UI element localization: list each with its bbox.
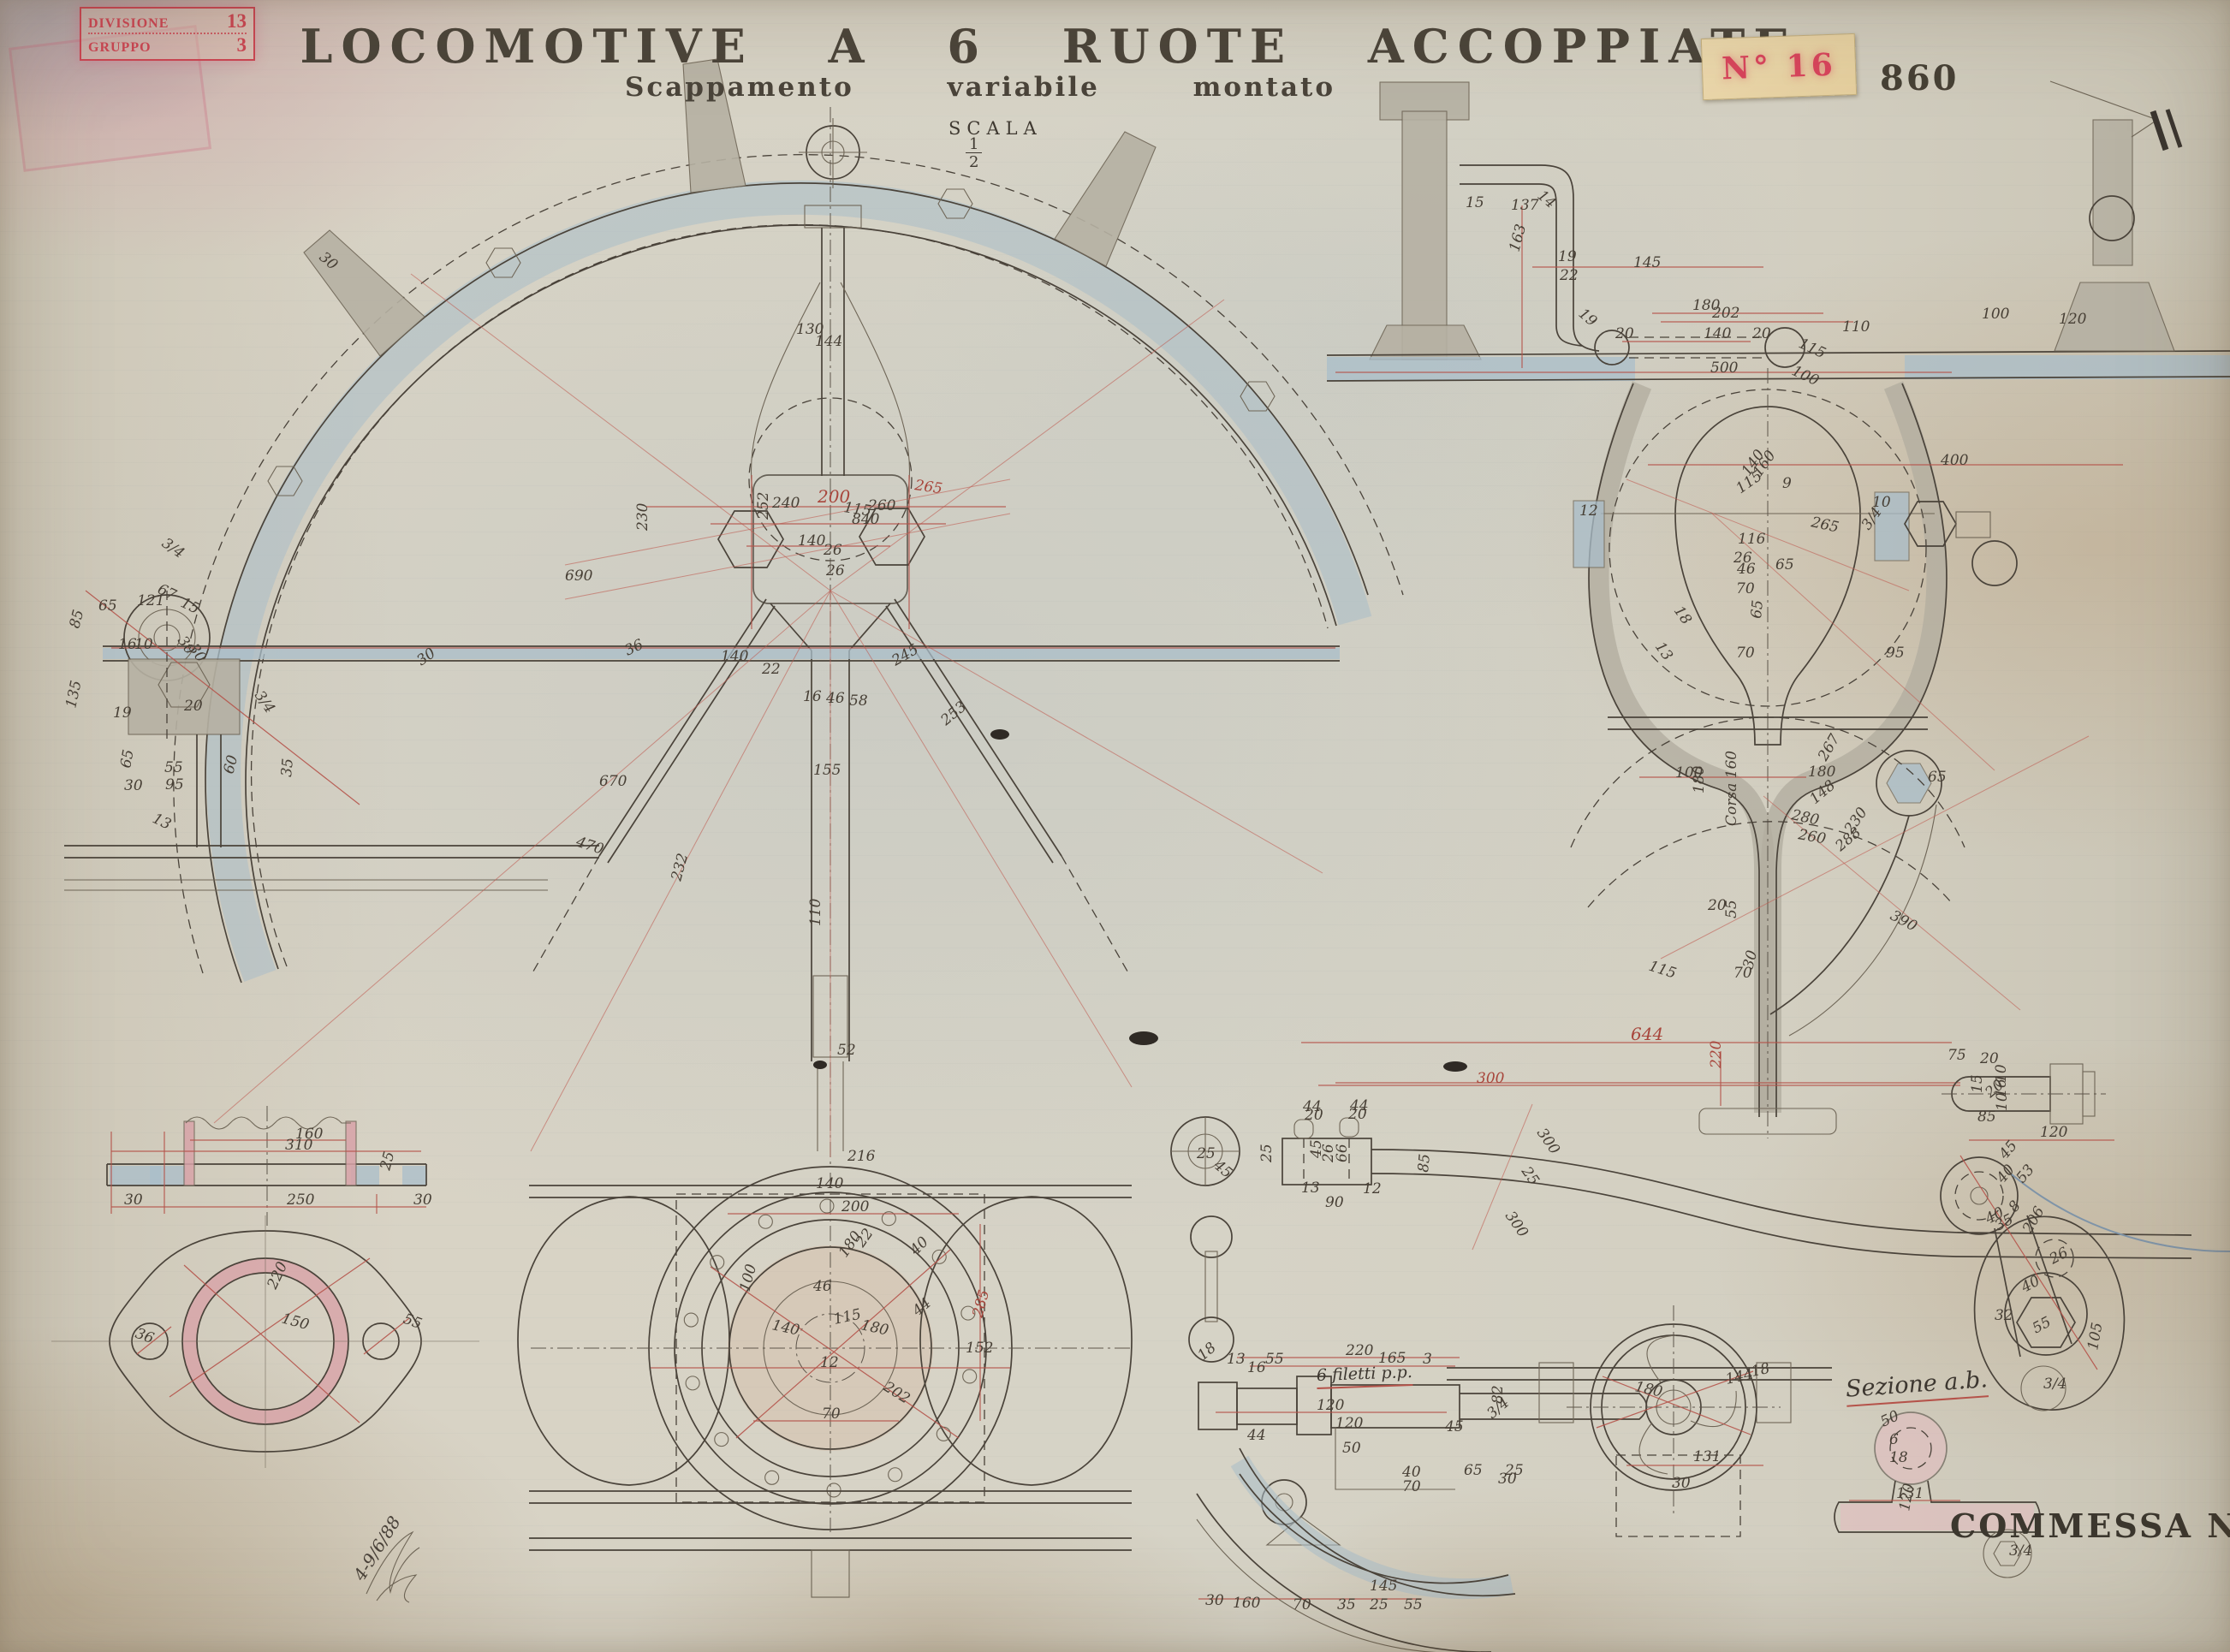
dimension-label: 144 — [815, 333, 842, 350]
dimension-label: 202 — [1711, 305, 1739, 322]
dimension-label: 30 — [413, 1191, 432, 1209]
dimension-label: 75 — [1948, 1047, 1966, 1064]
dimension-label: 310 — [285, 1137, 313, 1154]
scale-denominator: 2 — [966, 152, 982, 170]
dimension-label: 70 — [1733, 965, 1752, 982]
dimension-label: 18 — [1750, 1360, 1771, 1381]
bolt-hole — [889, 1468, 902, 1482]
dimension-label: 232 — [668, 852, 692, 883]
division-value: 13 — [227, 10, 247, 33]
dimension-label: 13 — [150, 810, 174, 833]
dimension-label: 66 — [1334, 1144, 1351, 1162]
dimension-label: 13 — [1227, 1351, 1246, 1368]
drawing-subtitle: Scappamento variabile montato — [625, 72, 1335, 103]
dimension-label: 140 — [798, 532, 826, 550]
dimension-label: 9 — [1782, 475, 1792, 492]
dimension-label: 285 — [969, 1288, 993, 1320]
dimension-label: 20 — [1347, 1106, 1367, 1123]
dimension-label: 13 — [1651, 639, 1676, 663]
dimension-label: 163 — [1507, 223, 1531, 254]
dimension-label: 85 — [1415, 1153, 1434, 1173]
dimension-label: 145 — [1633, 254, 1661, 271]
sticker-number: N° 16 — [1722, 47, 1837, 87]
dimension-label: 140 — [1704, 325, 1732, 342]
dimension-label: 70 — [1402, 1478, 1421, 1495]
dimension-label: 52 — [837, 1042, 856, 1059]
dimension-label: 180 — [1633, 1378, 1664, 1400]
dimension-label: 12 — [1363, 1180, 1382, 1197]
dimension-label: 265 — [1809, 514, 1840, 537]
number-sticker: N° 16 — [1701, 33, 1857, 100]
bolt-hole — [765, 1471, 779, 1484]
main-arc-view — [64, 59, 1403, 1164]
arc-fin — [1055, 132, 1156, 266]
dimension-label: 65 — [1775, 556, 1794, 573]
dimension-label: 18 — [1194, 1339, 1220, 1364]
dimension-label: 180 — [1808, 764, 1836, 781]
dimension-label: 95 — [165, 776, 184, 793]
dimension-label: 105 — [2084, 1321, 2106, 1351]
dimension-label: 18 — [1889, 1449, 1908, 1466]
dimension-label: 55 — [1404, 1596, 1423, 1613]
dimension-label: 252 — [755, 492, 772, 520]
dimension-label: 30 — [1498, 1471, 1517, 1488]
dimension-label: 46 — [825, 690, 845, 707]
dimension-label: 110 — [1842, 318, 1870, 336]
dimension-label: 250 — [286, 1191, 315, 1209]
dimension-label: 70 — [1736, 645, 1755, 662]
bolt-hole — [684, 1313, 698, 1327]
dimension-label: 690 — [565, 568, 593, 585]
dimension-label: 145 — [1370, 1578, 1397, 1595]
dimension-label: 26 — [823, 542, 842, 559]
dimension-label: 220 — [1708, 1040, 1725, 1069]
dimension-label: 152 — [966, 1340, 993, 1357]
drawing-title: LOCOMOTIVE A 6 RUOTE ACCOPPIATE — [300, 19, 1797, 74]
dimension-label: 19 — [1575, 306, 1601, 330]
dimension-label: 20 — [183, 698, 203, 715]
dimension-label: 131 — [1693, 1448, 1721, 1465]
division-stamp: DIVISIONE 13 GRUPPO 3 — [80, 7, 255, 61]
dimension-label: 20 — [1615, 325, 1634, 342]
drawing-sheet: 2001152658401402626690670470230130144164… — [0, 0, 2230, 1652]
dimension-label: 95 — [1886, 645, 1905, 662]
bolt-hole — [963, 1370, 977, 1383]
dimension-label: Corsa 160 — [1723, 751, 1740, 826]
dimension-label: 150 — [280, 1310, 312, 1334]
dimension-label: 25 — [1258, 1144, 1276, 1163]
dimension-label: 22 — [761, 661, 781, 678]
dimension-label: 44 — [1246, 1427, 1266, 1444]
dimension-label: 110 — [807, 898, 824, 926]
dimension-label: 140 — [816, 1175, 844, 1192]
dimension-label: 46 — [1736, 561, 1756, 578]
dimension-label: 55 — [1265, 1351, 1284, 1368]
dimension-label: 160 — [1233, 1595, 1261, 1612]
bolt-hole — [715, 1433, 728, 1447]
plate-number: 860 — [1880, 58, 1959, 98]
dimension-label: 22 — [1559, 267, 1579, 284]
dimension-label: 100 — [1982, 306, 2010, 323]
scale-label: SCALA — [948, 118, 1043, 139]
dimension-label: 20 — [1304, 1107, 1323, 1124]
dimension-label: 25 — [1196, 1145, 1216, 1162]
dimension-label: 115 — [1646, 958, 1678, 983]
dimension-label: 245 — [889, 641, 922, 670]
bolt-hole — [686, 1376, 699, 1390]
dimension-label: 120 — [1335, 1415, 1364, 1432]
dimension-label: 26 — [2046, 1245, 2072, 1269]
dimension-label: 16 — [803, 688, 822, 705]
commessa-number: COMMESSA N° 6994 — [1950, 1506, 2230, 1545]
dimension-label: 240 — [771, 495, 800, 512]
dimension-label: 120 — [2059, 311, 2087, 328]
dimension-label: 40 — [907, 1233, 932, 1259]
dimension-label: 3/4 — [2043, 1376, 2066, 1393]
dimension-label: 10 — [134, 636, 153, 653]
bell-view — [1301, 368, 2123, 1138]
dimension-label: 120 — [2040, 1124, 2068, 1141]
dimension-label: 400 — [1940, 452, 1969, 469]
dimension-label: 12 — [820, 1354, 839, 1371]
dimension-label: 53 — [2013, 1162, 2038, 1186]
dimension-label: 135 — [62, 679, 85, 710]
dimension-label: 40 — [2018, 1273, 2043, 1297]
top-pivot-fitting — [799, 118, 867, 476]
dimension-label: 3/4 — [251, 687, 278, 716]
dimension-label: 70 — [1736, 580, 1755, 597]
dimension-label: 65 — [1928, 769, 1947, 786]
dimension-label: 45 — [1995, 1138, 2021, 1163]
dimension-label: 65 — [1748, 599, 1767, 619]
dimension-label: 30 — [124, 777, 143, 794]
dimension-label: 200 — [841, 1198, 870, 1215]
dimension-label: 470 — [574, 833, 606, 858]
dimension-label: 32 — [1995, 1307, 2013, 1324]
dimension-label: 390 — [1888, 907, 1920, 936]
dimension-label: 116 — [1738, 531, 1766, 548]
dimension-label: 45 — [1444, 1418, 1464, 1435]
dimension-label: 265 — [913, 477, 943, 497]
dimension-label: 500 — [1710, 360, 1739, 377]
dimension-label: 19 — [1558, 248, 1577, 265]
dimension-label: 90 — [1325, 1194, 1344, 1211]
dimension-label: 3 — [1423, 1351, 1432, 1368]
dimension-label: 120 — [1317, 1397, 1345, 1414]
scale-fraction: 1 2 — [966, 137, 982, 170]
dimension-label: 300 — [1477, 1070, 1505, 1087]
dimension-label: 300 — [1502, 1208, 1531, 1240]
dimension-label: 644 — [1631, 1024, 1663, 1044]
dimension-label: 46 — [812, 1278, 832, 1295]
dimension-label: 19 — [113, 704, 132, 722]
dimension-label: 3/4 — [2009, 1542, 2032, 1560]
dimension-label: 180 — [1691, 765, 1708, 793]
dimension-label: 35 — [1337, 1596, 1356, 1613]
dimension-label: 260 — [1796, 826, 1828, 848]
dimension-label: 300 — [1533, 1125, 1563, 1157]
dimension-label: 85 — [67, 608, 88, 630]
dimension-label: 18 — [1670, 603, 1695, 627]
group-value: 3 — [237, 34, 247, 56]
dimension-label: 85 — [1977, 1108, 1996, 1126]
dimension-label: 253 — [937, 698, 970, 730]
dimension-label: 280 — [1789, 806, 1821, 829]
dimension-label: 155 — [813, 762, 841, 779]
dimension-label: 55 — [401, 1310, 424, 1333]
dimension-label: 30 — [124, 1191, 143, 1209]
dimension-label: 65 — [117, 748, 137, 770]
dimension-label: 10 — [1994, 1092, 2011, 1111]
dimension-label: 100 — [1789, 362, 1822, 389]
drawing-linework: 2001152658401402626690670470230130144164… — [0, 0, 2230, 1652]
dimension-label: 216 — [847, 1148, 876, 1165]
dimension-label: 16 — [1247, 1359, 1266, 1376]
dimension-label: 140 — [721, 648, 749, 665]
bolt-hole — [820, 1199, 834, 1213]
dimension-label: 6 — [1889, 1431, 1899, 1448]
dimension-label: 13 — [1301, 1180, 1320, 1197]
dimension-label: 25 — [1369, 1596, 1389, 1613]
thread-note: 6 filetti p.p. — [1317, 1363, 1413, 1389]
dimension-label: 26 — [825, 562, 845, 579]
dimension-label: 260 — [867, 497, 896, 514]
bolt-hole — [827, 1483, 841, 1497]
bolt-hole — [937, 1427, 950, 1441]
dimension-label: 670 — [599, 773, 627, 790]
dimension-label: 55 — [2030, 1314, 2054, 1338]
dimension-label: 50 — [1342, 1440, 1361, 1457]
dimension-label: 55 — [164, 759, 183, 776]
dimension-label: 20 — [1751, 325, 1771, 342]
dimension-label: 70 — [1293, 1596, 1311, 1613]
dimension-label: 30 — [1672, 1475, 1691, 1492]
dimension-label: 65 — [98, 597, 117, 615]
dimension-label: 20 — [1707, 897, 1727, 914]
dimension-label: 82 — [1490, 1385, 1507, 1404]
dimension-label: 58 — [849, 692, 868, 710]
dimension-label: 220 — [1345, 1342, 1374, 1359]
dimension-label: 70 — [822, 1405, 841, 1423]
dimension-label: 12 — [1579, 502, 1598, 520]
pipe-view — [1327, 81, 2230, 381]
group-label: GRUPPO — [88, 40, 152, 56]
dimension-label: 65 — [1464, 1462, 1483, 1479]
plan-view — [518, 1167, 1132, 1597]
division-label: DIVISIONE — [88, 16, 169, 32]
scale-numerator: 1 — [969, 135, 978, 153]
flange-view — [51, 1215, 479, 1468]
dimension-label: 15 — [1466, 194, 1484, 211]
dimension-label: 3/4 — [158, 535, 187, 562]
dimension-label: 230 — [634, 502, 651, 532]
dimension-label: 30 — [1205, 1592, 1224, 1609]
dimension-label: 25 — [377, 1150, 398, 1173]
dimension-label: 25 — [1517, 1163, 1542, 1189]
bolt-hole — [758, 1215, 772, 1228]
dimension-label: 35 — [278, 758, 297, 777]
